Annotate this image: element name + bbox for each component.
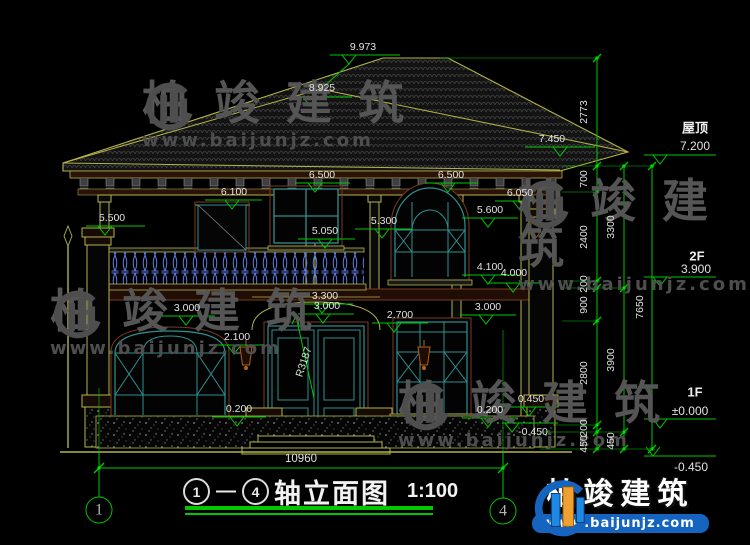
- title-axis-chip-1: 1: [183, 478, 210, 505]
- pillar-left: [64, 226, 114, 448]
- elevation-mark: 5.600: [477, 204, 503, 216]
- elevation-mark: 5.500: [99, 212, 125, 224]
- level-name-roof: 屋顶: [682, 118, 708, 137]
- overall-width-dim: 10960: [285, 453, 317, 465]
- title-underline: [185, 506, 433, 510]
- elevation-mark: -0.450: [518, 426, 548, 438]
- elevation-mark: 0.200: [226, 403, 252, 415]
- porch-door-2f: [195, 202, 250, 252]
- level-value-2f: 3.900: [681, 262, 711, 276]
- elevation-mark: 7.450: [539, 133, 565, 145]
- chain-dim: 700: [578, 149, 590, 209]
- elevation-mark: 3.000: [475, 301, 501, 313]
- elevation-mark: 0.200: [477, 404, 503, 416]
- title-axis-chip-4: 4: [242, 478, 269, 505]
- window-1f-right: [390, 318, 474, 419]
- elevation-mark: 4.100: [477, 261, 503, 273]
- elevation-drawing: [0, 0, 750, 545]
- chain-dim: 7650: [634, 277, 646, 337]
- level-value-ground: -0.450: [674, 460, 708, 474]
- level-name-1f: 1F: [687, 385, 702, 400]
- roof: [63, 58, 628, 171]
- balcony-balustrade: [104, 248, 366, 290]
- window-2f-center: [268, 186, 344, 250]
- elevation-mark: 5.300: [371, 215, 397, 227]
- chain-dim: 900: [578, 275, 590, 335]
- title-underline: [185, 513, 433, 515]
- elevation-mark: 3.000: [174, 302, 200, 314]
- elevation-mark: 6.500: [309, 169, 335, 181]
- elevation-mark: 6.500: [438, 169, 464, 181]
- chain-dim: 3300: [605, 197, 617, 257]
- title-scale: 1:100: [407, 480, 458, 503]
- window-2f-right-arch: [388, 183, 472, 285]
- elevation-mark: 6.050: [507, 187, 533, 199]
- axis-bubble-4: 4: [490, 498, 517, 525]
- elevation-mark: 3.000: [314, 300, 340, 312]
- brand-logo-icon: [532, 478, 590, 540]
- level-value-1f: ±0.000: [672, 404, 709, 418]
- elevation-mark: 0.450: [518, 393, 544, 405]
- chain-dim: 2773: [578, 82, 590, 142]
- pillar-right: [524, 200, 558, 447]
- elevation-mark: 8.925: [309, 82, 335, 94]
- chain-dim: 2800: [578, 343, 590, 403]
- elevation-mark: 2.700: [387, 309, 413, 321]
- elevation-mark: 9.973: [350, 41, 376, 53]
- cad-elevation-canvas: 柏竣建筑 www.baijunjz.com 柏竣建筑 www.baijunjz.…: [0, 0, 750, 545]
- brand-logo: 柏竣建筑 www.baijunjz.com: [532, 478, 709, 533]
- window-1f-left-arch: [108, 327, 232, 423]
- elevation-mark: 4.000: [501, 267, 527, 279]
- elevation-mark: 2.100: [224, 331, 250, 343]
- elevation-mark: 5.050: [312, 225, 338, 237]
- chain-dim: 450: [605, 411, 617, 471]
- axis-bubble-1: 1: [86, 497, 113, 524]
- chain-dim: 3900: [605, 330, 617, 390]
- level-value-roof: 7.200: [680, 139, 710, 153]
- elevation-mark: 6.100: [221, 186, 247, 198]
- plinth-and-steps: [60, 416, 572, 454]
- chain-dim: 450: [578, 414, 590, 474]
- title-dash: —: [216, 480, 236, 503]
